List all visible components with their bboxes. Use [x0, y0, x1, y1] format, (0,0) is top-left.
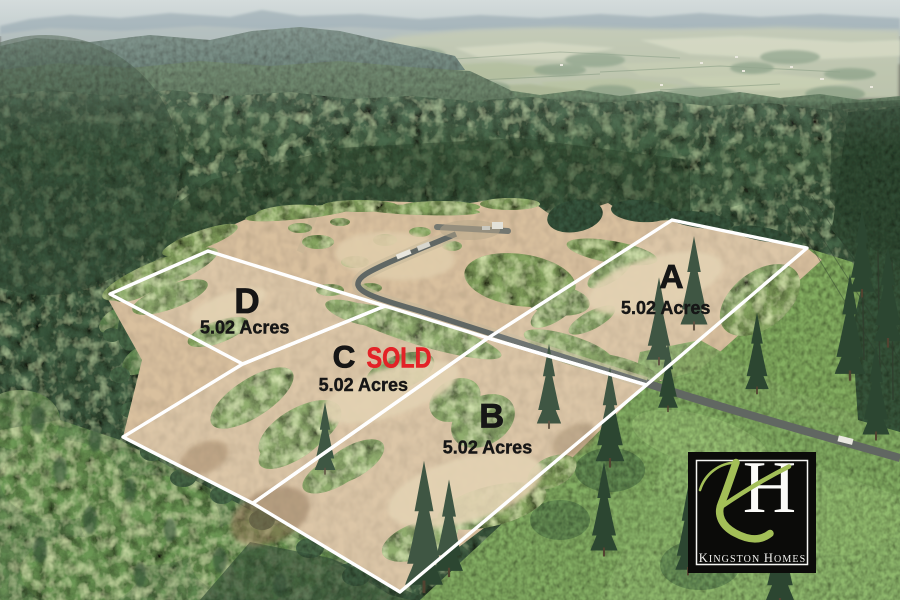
- svg-text:A: A: [659, 259, 683, 296]
- svg-text:SOLD: SOLD: [367, 343, 432, 375]
- svg-text:5.02 Acres: 5.02 Acres: [443, 438, 532, 458]
- svg-text:C: C: [333, 339, 356, 375]
- svg-text:B: B: [479, 398, 504, 436]
- svg-text:KINGSTON HOMES: KINGSTON HOMES: [699, 551, 806, 565]
- svg-text:5.02 Acres: 5.02 Acres: [319, 375, 408, 395]
- svg-text:D: D: [234, 282, 259, 321]
- svg-text:5.02 Acres: 5.02 Acres: [621, 298, 710, 318]
- svg-text:5.02 Acres: 5.02 Acres: [200, 317, 289, 337]
